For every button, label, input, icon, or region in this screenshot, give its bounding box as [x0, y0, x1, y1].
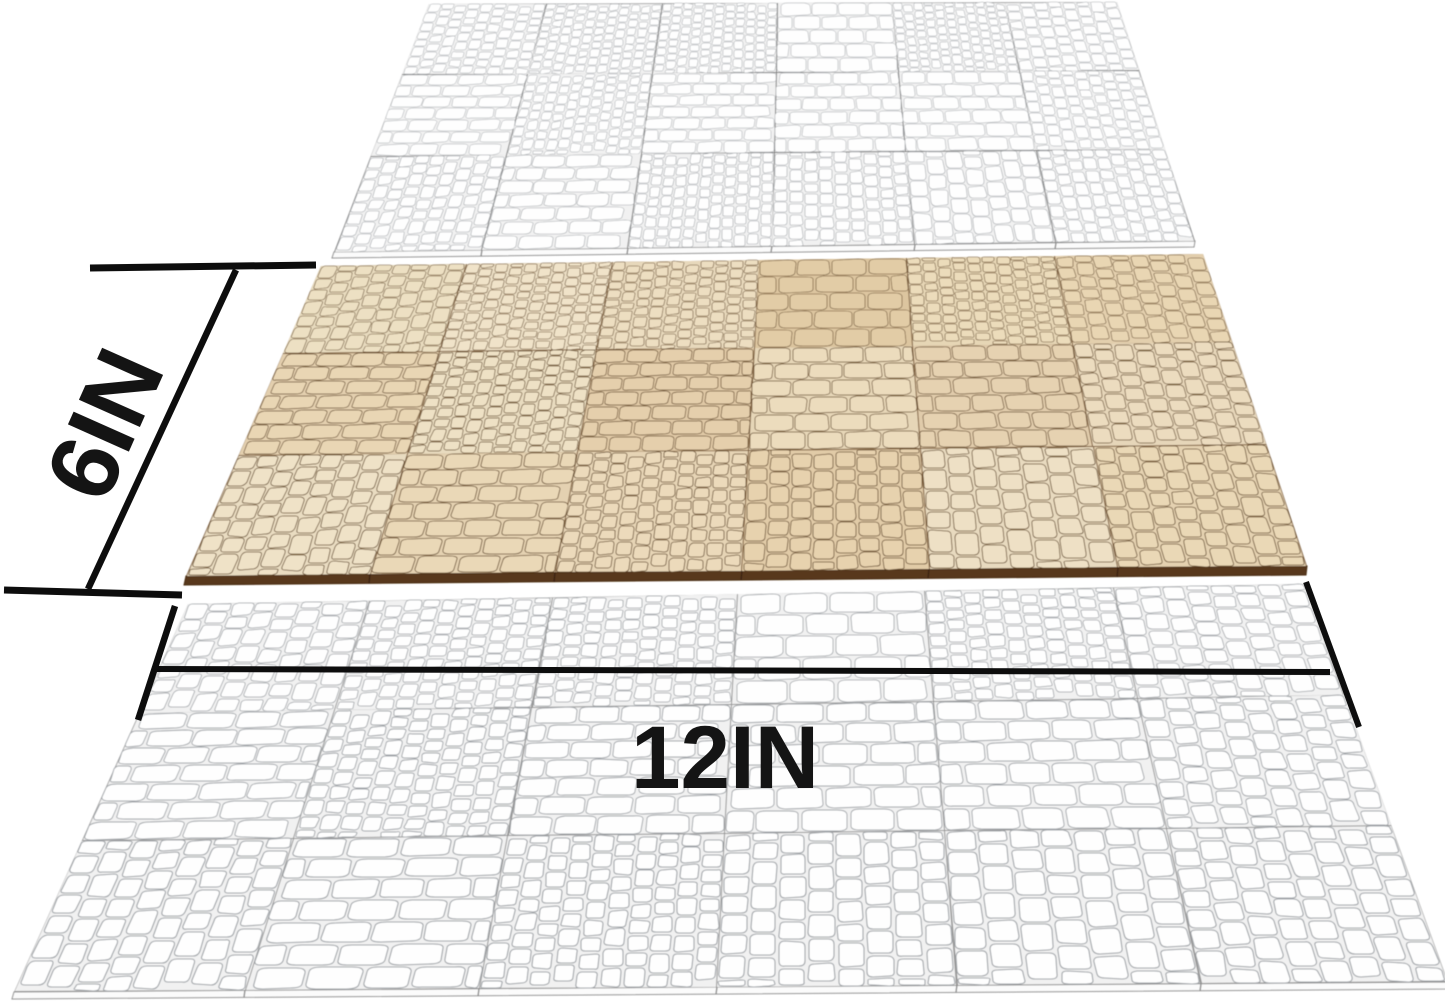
svg-text:12IN: 12IN — [631, 707, 819, 807]
